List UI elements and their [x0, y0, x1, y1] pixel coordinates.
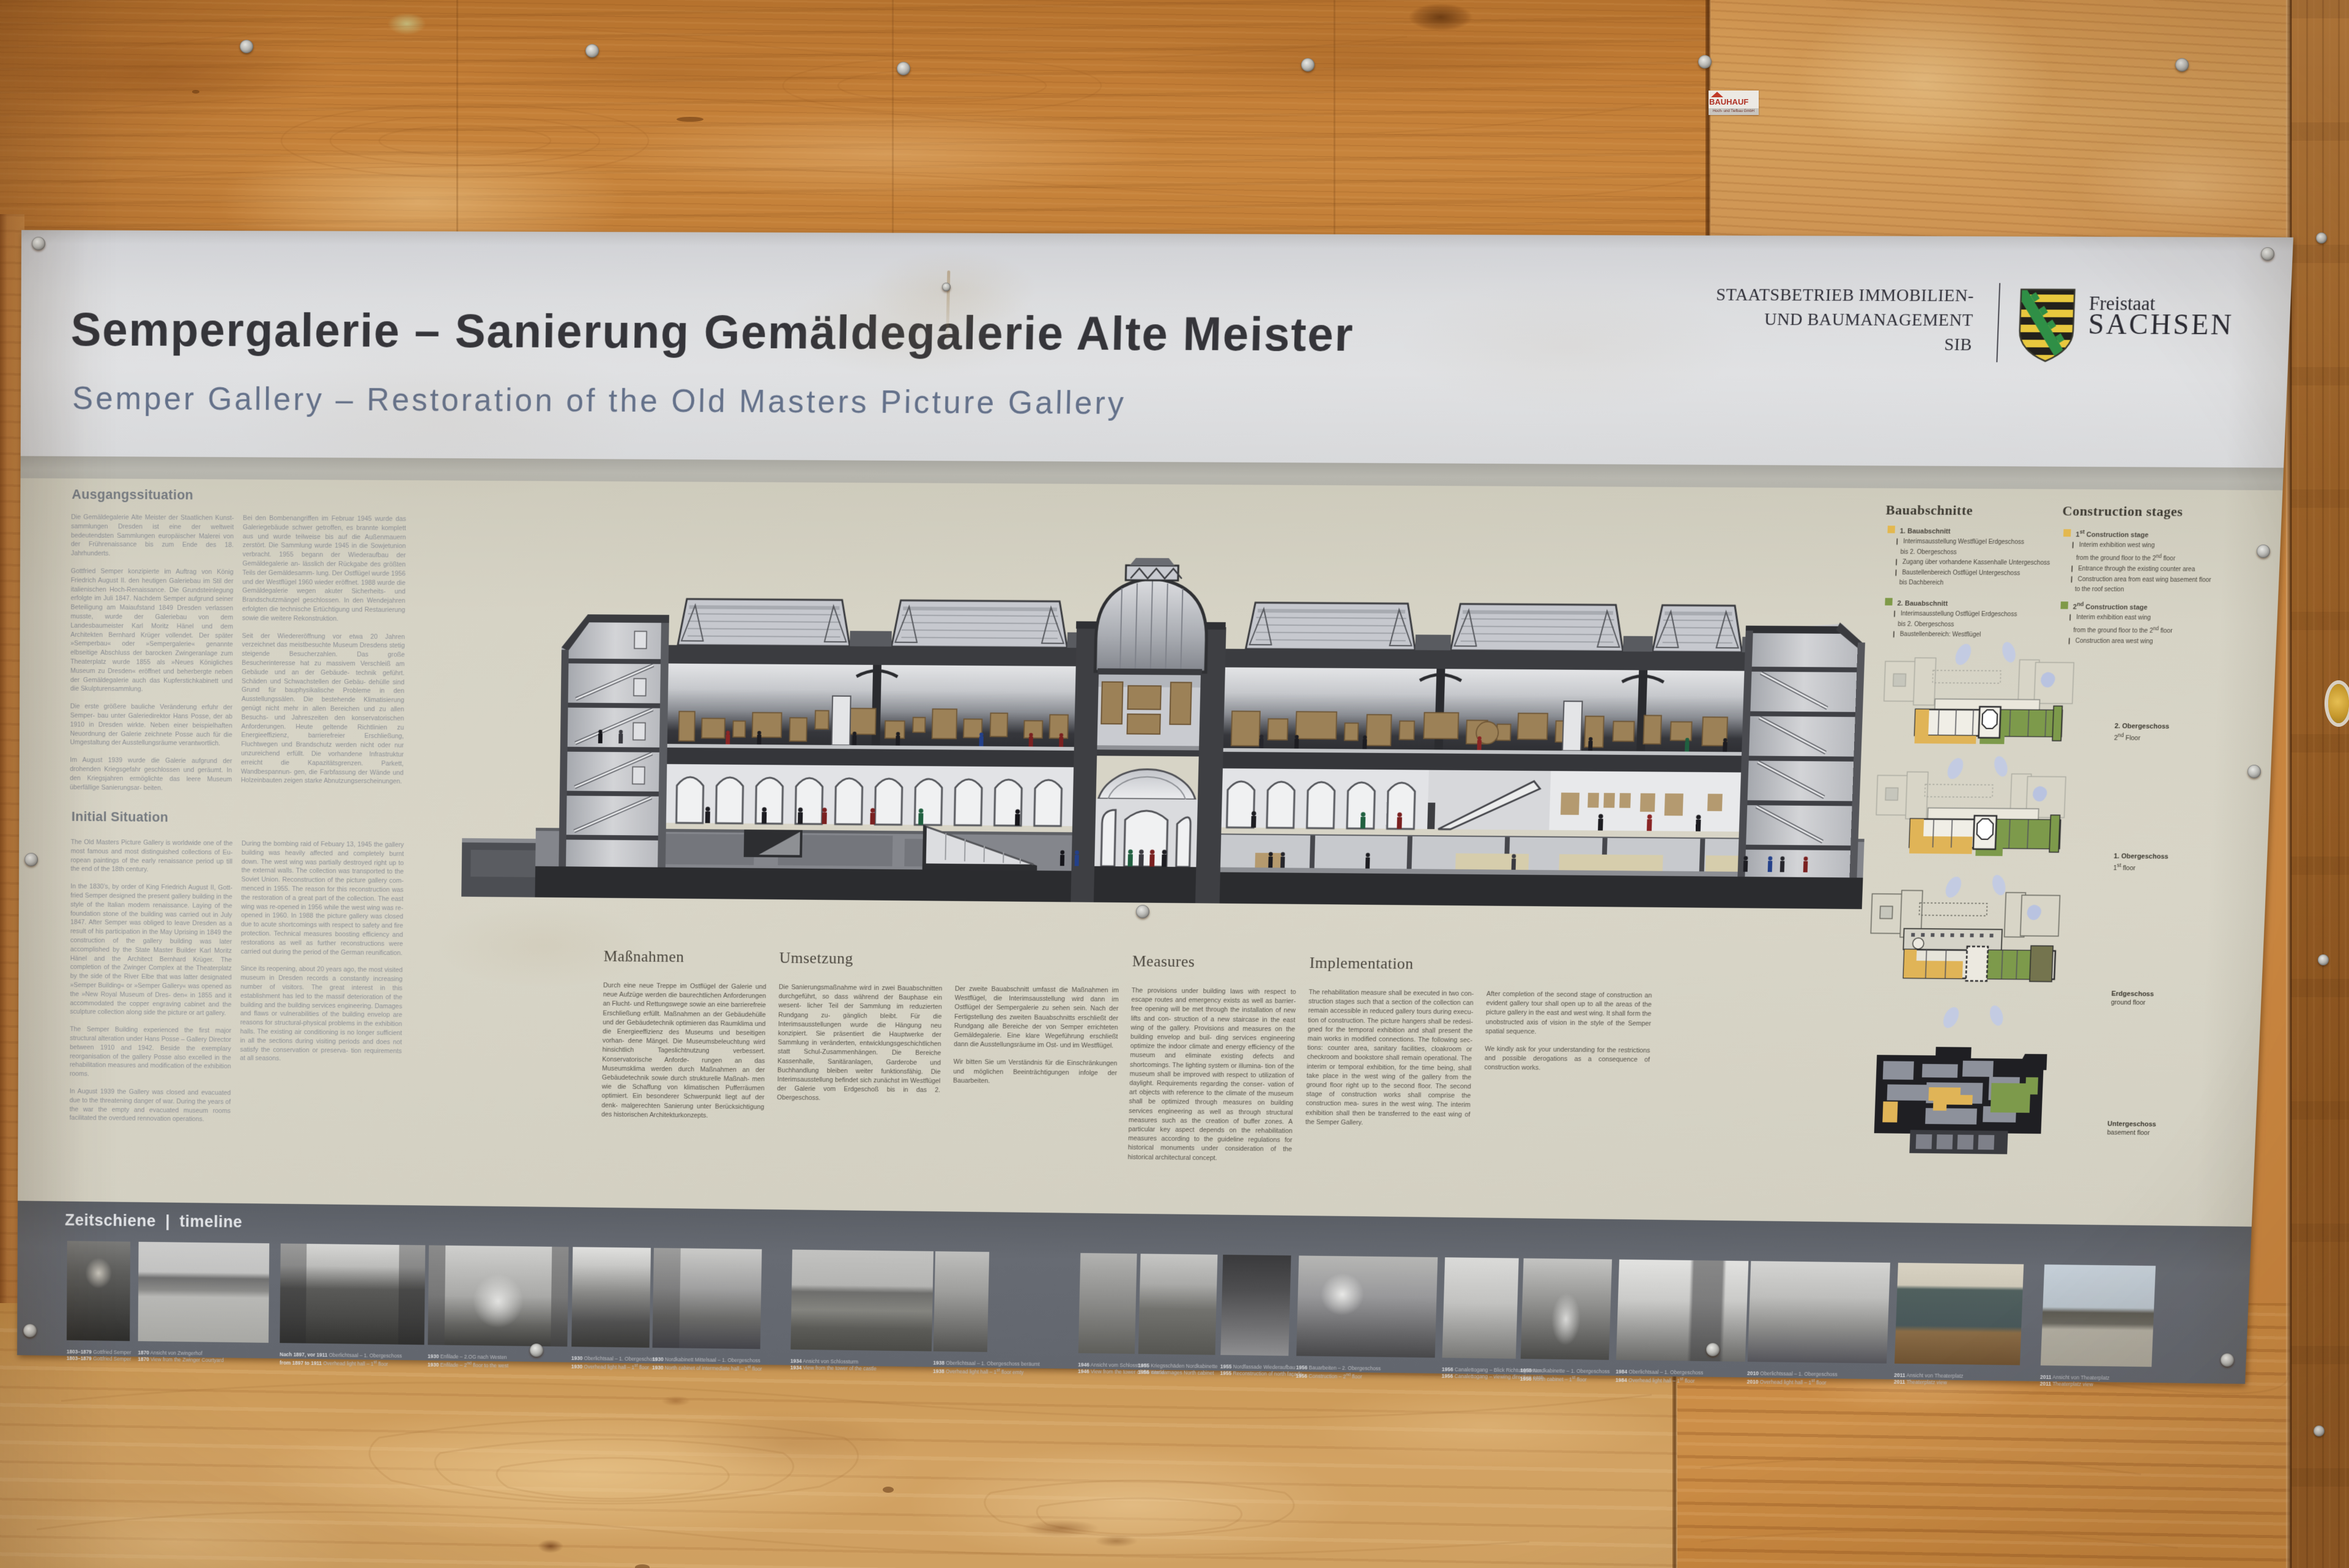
svg-text:SACHSEN: SACHSEN [2088, 308, 2235, 340]
